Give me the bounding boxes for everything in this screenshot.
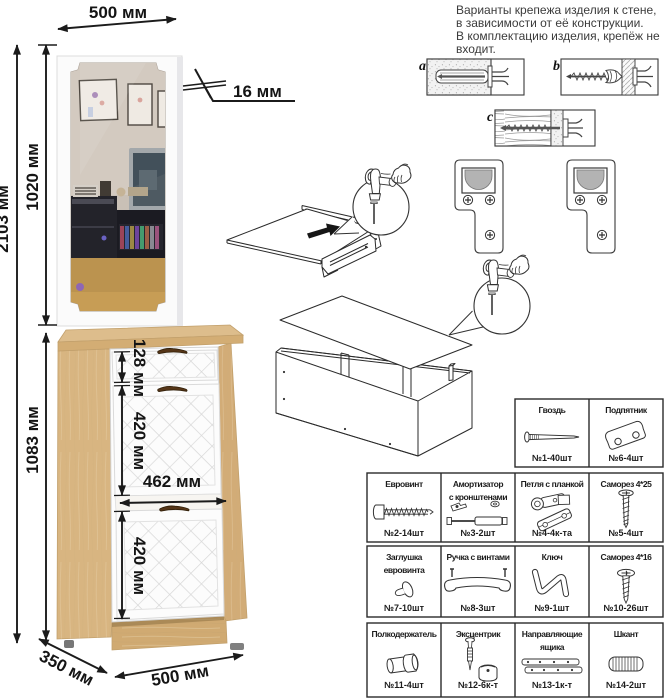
svg-text:1020 мм: 1020 мм <box>23 143 42 211</box>
svg-text:№14-2шт: №14-2шт <box>606 680 647 690</box>
svg-text:a: a <box>419 59 426 74</box>
svg-text:№5-4шт: №5-4шт <box>609 528 645 538</box>
svg-text:евровинта: евровинта <box>384 565 425 575</box>
svg-text:Полкодержатель: Полкодержатель <box>372 629 437 639</box>
svg-text:№2-14шт: №2-14шт <box>384 528 425 538</box>
svg-text:Петля с планкой: Петля с планкой <box>521 479 584 489</box>
svg-text:Заглушка: Заглушка <box>386 552 423 562</box>
svg-text:№8-3шт: №8-3шт <box>461 603 497 613</box>
svg-text:входит.: входит. <box>456 42 496 56</box>
svg-text:Подпятник: Подпятник <box>605 405 648 415</box>
svg-text:№12-6к-т: №12-6к-т <box>458 680 499 690</box>
svg-text:Направляющие: Направляющие <box>522 629 583 639</box>
svg-text:Ключ: Ключ <box>542 552 563 562</box>
svg-text:420 мм: 420 мм <box>130 412 149 470</box>
svg-text:c: c <box>487 110 494 125</box>
svg-text:420 мм: 420 мм <box>130 537 149 595</box>
svg-text:Саморез 4*25: Саморез 4*25 <box>601 479 653 489</box>
svg-text:№11-4шт: №11-4шт <box>384 680 424 690</box>
svg-text:№1-40шт: №1-40шт <box>532 453 573 463</box>
svg-text:500 мм: 500 мм <box>89 3 147 22</box>
svg-text:в зависимости от её конструкци: в зависимости от её конструкции. <box>456 16 644 30</box>
svg-text:Шкант: Шкант <box>614 629 639 639</box>
svg-text:b: b <box>553 59 560 74</box>
svg-text:с кронштенами: с кронштенами <box>449 492 508 502</box>
svg-text:Ручка с винтами: Ручка с винтами <box>446 552 509 562</box>
svg-text:№13-1к-т: №13-1к-т <box>532 680 573 690</box>
svg-text:№3-2шт: №3-2шт <box>461 528 497 538</box>
svg-text:Гвоздь: Гвоздь <box>539 405 566 415</box>
svg-text:№4-4к-та: №4-4к-та <box>532 528 573 538</box>
svg-text:Варианты крепежа изделия к сте: Варианты крепежа изделия к стене, <box>456 3 657 17</box>
svg-text:Амортизатор: Амортизатор <box>453 479 504 489</box>
svg-text:№7-10шт: №7-10шт <box>384 603 425 613</box>
svg-text:№10-26шт: №10-26шт <box>604 603 650 613</box>
svg-text:Евровинт: Евровинт <box>385 479 423 489</box>
svg-text:В комплектацию изделия, крепёж: В комплектацию изделия, крепёж не <box>456 29 660 43</box>
svg-text:462 мм: 462 мм <box>143 472 201 491</box>
svg-text:Саморез 4*16: Саморез 4*16 <box>601 552 653 562</box>
svg-text:128 мм: 128 мм <box>130 339 149 397</box>
svg-text:Эксцентрик: Эксцентрик <box>456 629 502 639</box>
svg-text:16 мм: 16 мм <box>233 82 282 101</box>
svg-text:2103 мм: 2103 мм <box>0 185 12 253</box>
svg-text:1083 мм: 1083 мм <box>23 406 42 474</box>
svg-text:№9-1шт: №9-1шт <box>535 603 571 613</box>
svg-text:ящика: ящика <box>540 642 565 652</box>
svg-text:№6-4шт: №6-4шт <box>609 453 645 463</box>
